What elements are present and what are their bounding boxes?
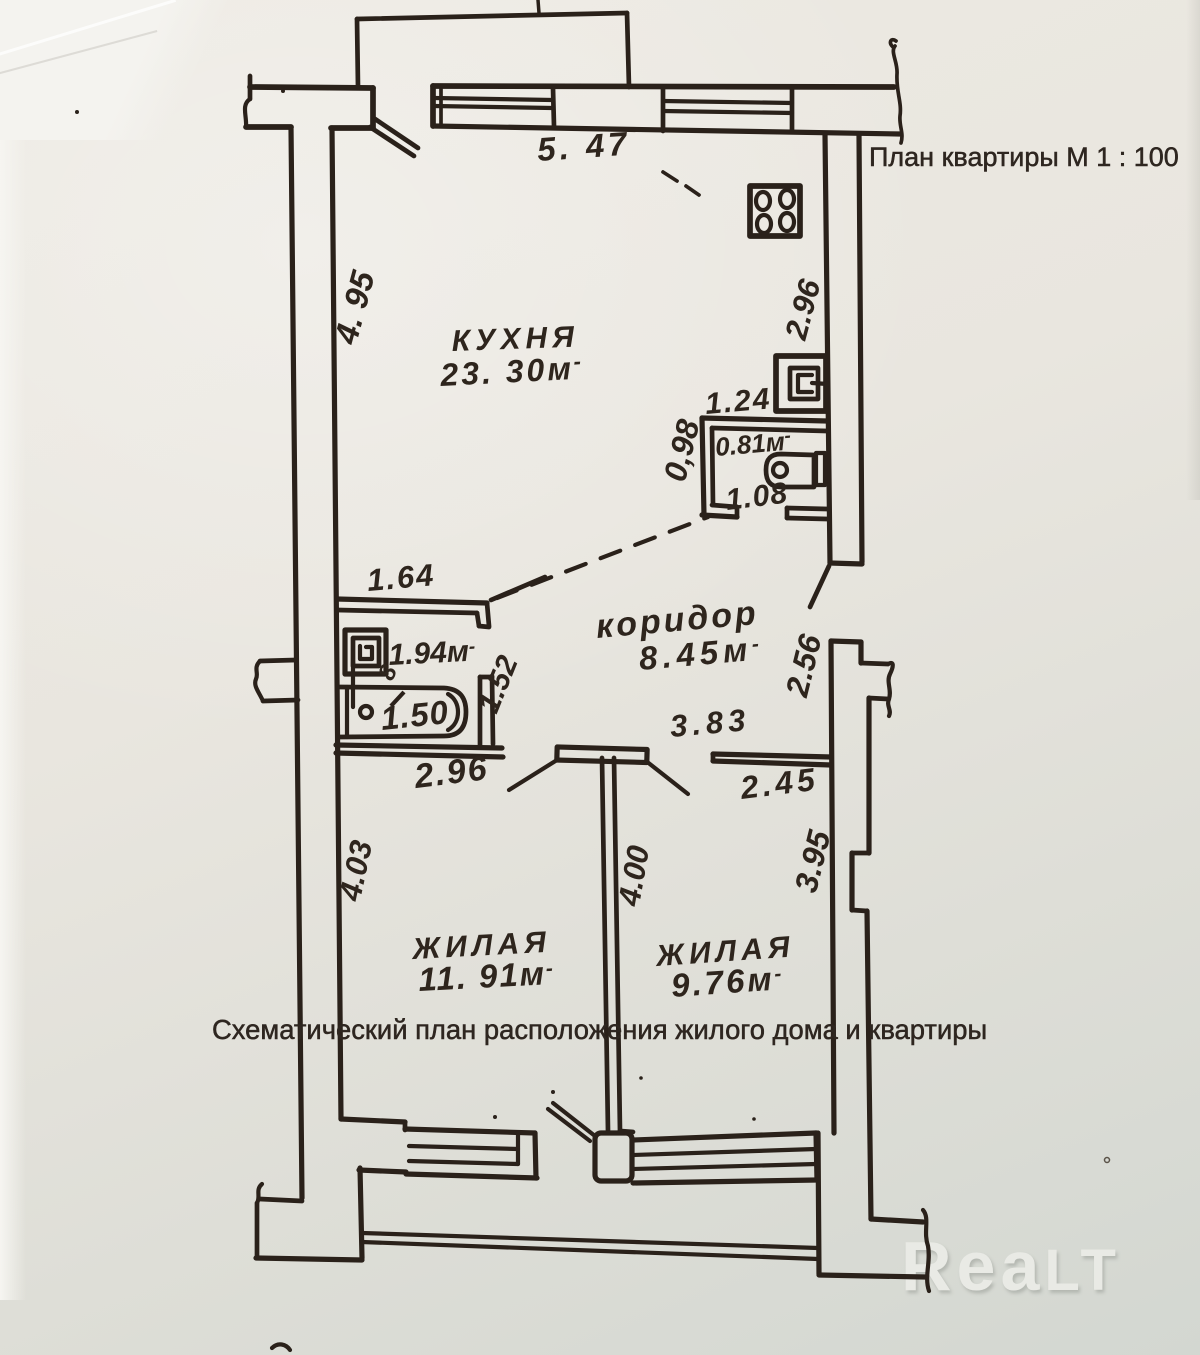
svg-text:3.83: 3.83 <box>669 702 752 744</box>
svg-text:Схематический план расположени: Схематический план расположения жилого д… <box>212 1014 987 1045</box>
svg-text:0.81м-: 0.81м- <box>714 425 792 462</box>
svg-text:2.96: 2.96 <box>778 275 828 344</box>
svg-text:1.24: 1.24 <box>704 382 773 421</box>
svg-text:5. 47: 5. 47 <box>536 125 632 168</box>
svg-text:0,98: 0,98 <box>657 416 707 485</box>
svg-text:1.50: 1.50 <box>379 693 451 737</box>
svg-text:План квартиры М 1 : 100: План квартиры М 1 : 100 <box>869 142 1179 172</box>
svg-text:1.52: 1.52 <box>472 651 525 718</box>
svg-text:2.45: 2.45 <box>737 761 820 806</box>
svg-text:1.08: 1.08 <box>724 477 790 517</box>
svg-text:23. 30м-: 23. 30м- <box>438 349 585 394</box>
svg-text:11. 91м-: 11. 91м- <box>417 954 555 998</box>
svg-text:9.76м-: 9.76м- <box>670 959 786 1004</box>
svg-text:1.64: 1.64 <box>366 557 437 598</box>
svg-text:2.56: 2.56 <box>778 631 828 701</box>
svg-text:1.94м-: 1.94м- <box>388 634 477 672</box>
svg-text:2.96: 2.96 <box>411 749 490 796</box>
